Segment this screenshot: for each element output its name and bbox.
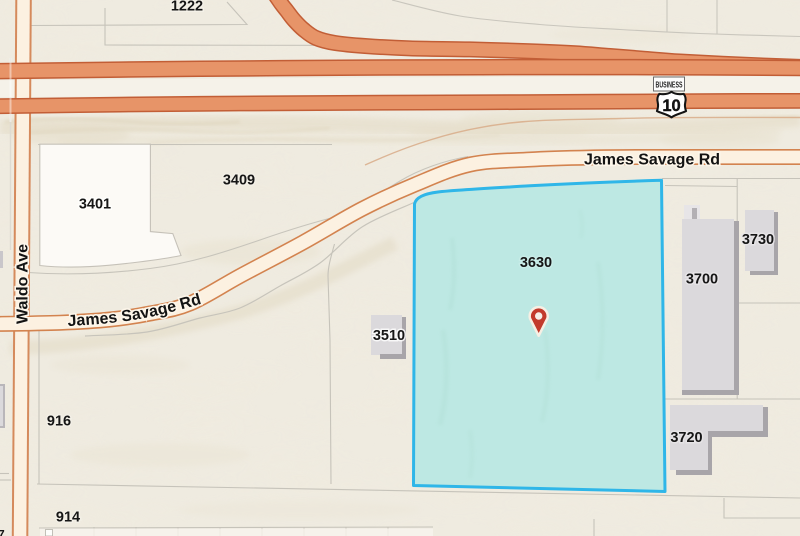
svg-text:3401: 3401	[79, 197, 111, 213]
svg-text:10: 10	[662, 97, 680, 115]
svg-text:Waldo Ave: Waldo Ave	[15, 244, 32, 324]
svg-text:James Savage Rd: James Savage Rd	[584, 152, 720, 169]
svg-text:7: 7	[0, 528, 5, 536]
svg-text:BUSINESS: BUSINESS	[656, 80, 683, 90]
svg-text:3510: 3510	[373, 328, 405, 344]
svg-text:916: 916	[47, 414, 71, 430]
svg-text:3720: 3720	[670, 430, 702, 446]
svg-text:3700: 3700	[686, 272, 718, 288]
svg-text:3409: 3409	[223, 173, 255, 189]
svg-text:3730: 3730	[742, 232, 774, 248]
svg-text:1222: 1222	[171, 0, 203, 15]
svg-text:914: 914	[56, 510, 80, 526]
svg-text:3630: 3630	[520, 255, 552, 271]
